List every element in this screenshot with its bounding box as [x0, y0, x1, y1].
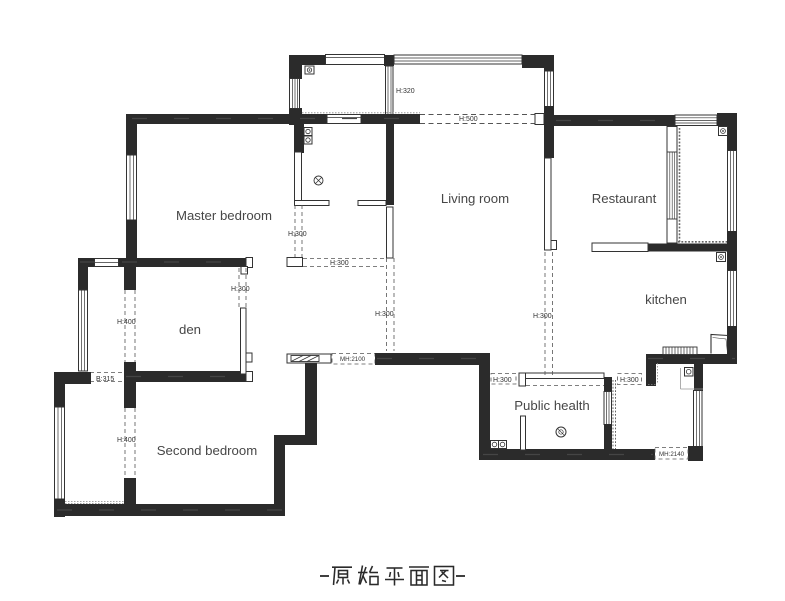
svg-text:MH:2140: MH:2140 [659, 451, 685, 458]
svg-text:Second bedroom: Second bedroom [157, 443, 257, 458]
svg-text:H:400: H:400 [117, 437, 136, 444]
svg-text:kitchen: kitchen [645, 292, 687, 307]
svg-text:MH:2100: MH:2100 [340, 356, 366, 363]
svg-text:Master bedroom: Master bedroom [176, 208, 272, 223]
svg-text:H:300: H:300 [533, 313, 552, 320]
svg-text:H:300: H:300 [231, 286, 250, 293]
svg-text:H:300: H:300 [375, 311, 394, 318]
svg-text:H:300: H:300 [493, 377, 512, 384]
svg-text:B:315: B:315 [96, 376, 114, 383]
svg-text:H:300: H:300 [330, 260, 349, 267]
svg-text:H:400: H:400 [117, 319, 136, 326]
svg-text:Restaurant: Restaurant [592, 191, 657, 206]
svg-text:H:300: H:300 [288, 231, 307, 238]
svg-text:H:320: H:320 [396, 88, 415, 95]
svg-text:H:300: H:300 [620, 377, 639, 384]
svg-text:Living room: Living room [441, 191, 509, 206]
svg-text:den: den [179, 322, 201, 337]
svg-text:Public health: Public health [514, 398, 590, 413]
svg-text:H:500: H:500 [459, 116, 478, 123]
